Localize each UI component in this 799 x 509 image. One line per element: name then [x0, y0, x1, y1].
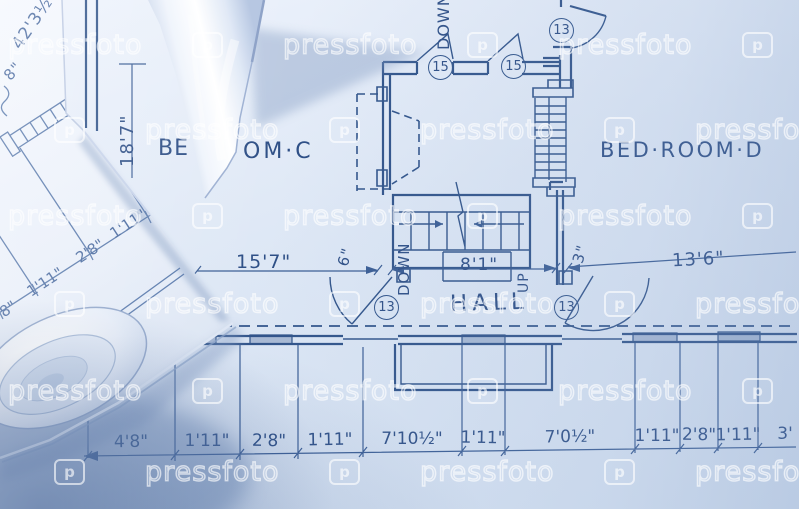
roll-shadow-right [250, 28, 425, 128]
paper-roll-cylinder [148, 0, 264, 198]
blueprint-photo: BE OM·C BED·ROOM·D HALL 15 15 13 13 13 D… [0, 0, 799, 509]
rolled-blueprints [0, 0, 799, 509]
